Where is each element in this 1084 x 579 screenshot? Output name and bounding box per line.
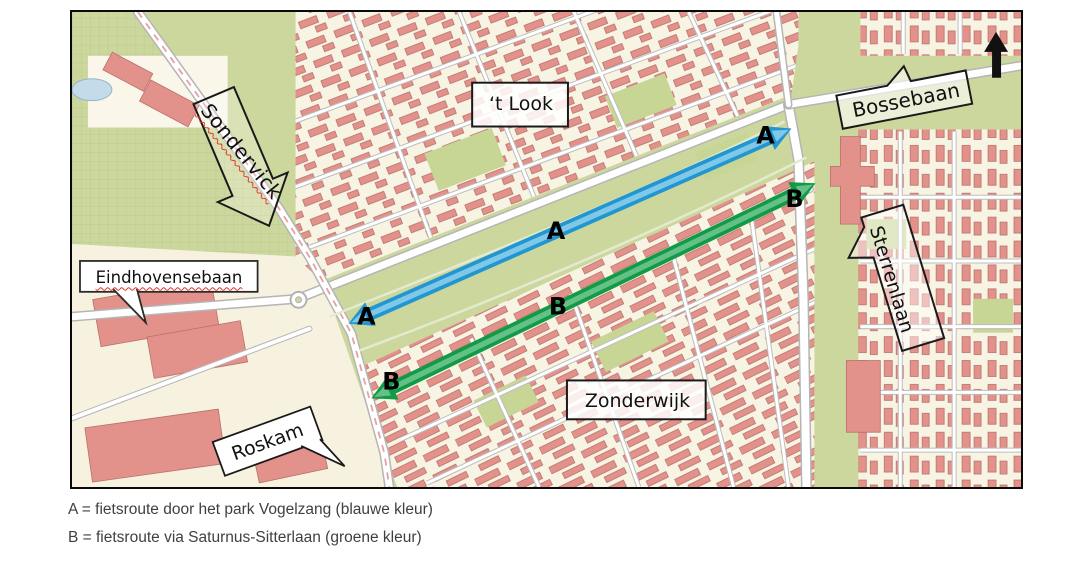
area-label-zonderwijk: Zonderwijk: [568, 382, 707, 421]
route-B-label-east: B: [785, 185, 803, 213]
route-A-label-east: A: [756, 121, 775, 149]
route-B-label-mid: B: [549, 293, 567, 321]
route-A-label-mid: A: [547, 217, 566, 245]
screenshot-page: A A A B B B: [0, 0, 1084, 579]
area-label-t-look: ‘t Look: [473, 83, 569, 127]
route-A-label-west: A: [357, 303, 376, 331]
legend-line-route-b: B = fietsroute via Saturnus-Sitterlaan (…: [68, 524, 433, 552]
map-legend: A = fietsroute door het park Vogelzang (…: [68, 496, 433, 552]
route-B-label-west: B: [382, 367, 400, 395]
legend-line-route-a: A = fietsroute door het park Vogelzang (…: [68, 496, 433, 524]
street-label-eindhovensebaan: Eindhovensebaan: [80, 263, 258, 293]
map-image: A A A B B B: [70, 10, 1023, 489]
pond: [72, 79, 112, 101]
